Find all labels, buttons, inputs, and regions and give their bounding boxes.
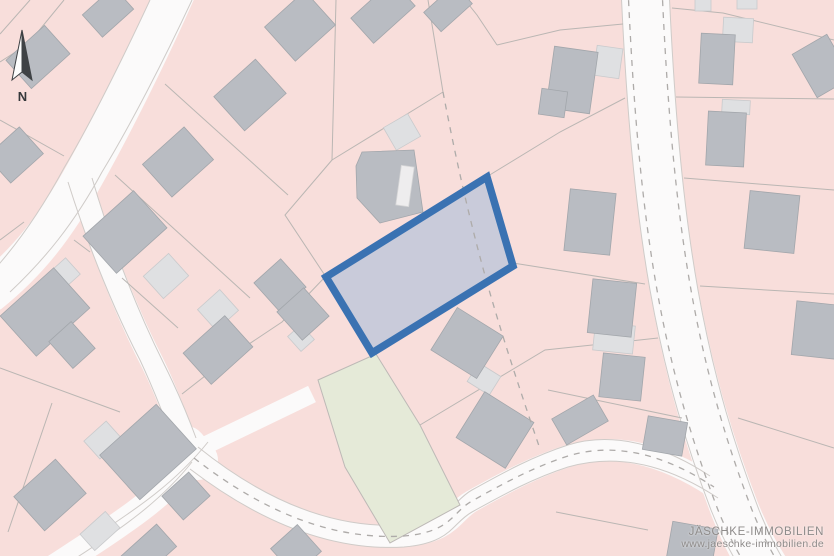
road <box>200 394 312 448</box>
building <box>642 416 687 456</box>
building <box>183 316 253 385</box>
parcel-boundary <box>700 286 834 294</box>
parcel-boundary <box>676 97 834 99</box>
building <box>265 0 336 61</box>
building <box>14 459 86 531</box>
building <box>599 353 645 401</box>
building <box>424 0 473 32</box>
watermark-url: www.jaeschke-immobilien.de <box>681 539 824 551</box>
north-arrow-icon <box>6 26 40 86</box>
building <box>552 395 609 445</box>
building <box>744 191 800 254</box>
parcel-boundary <box>738 418 834 448</box>
green-area <box>318 354 460 543</box>
building <box>456 392 534 469</box>
parcel-boundary <box>497 24 623 45</box>
building <box>431 307 503 378</box>
watermark: JÄSCHKE-IMMOBILIEN www.jaeschke-immobili… <box>681 526 824 551</box>
building <box>706 111 747 167</box>
building <box>538 88 567 117</box>
green-areas-layer <box>318 354 460 543</box>
building <box>564 189 616 255</box>
building <box>792 34 834 97</box>
structure <box>383 114 420 151</box>
building <box>356 150 423 223</box>
building <box>82 0 133 37</box>
structure <box>143 253 188 298</box>
structure <box>737 0 757 9</box>
parcel-boundary <box>556 512 648 530</box>
parcel-boundary <box>684 178 834 190</box>
building <box>791 301 834 359</box>
parcel-boundary <box>513 263 645 284</box>
building <box>142 127 213 197</box>
parcel-boundary <box>0 368 120 412</box>
building <box>0 127 43 183</box>
site-plan-map: N JÄSCHKE-IMMOBILIEN www.jaeschke-immobi… <box>0 0 834 556</box>
north-label: N <box>6 89 40 104</box>
structure <box>593 45 623 78</box>
map-canvas <box>0 0 834 556</box>
building <box>587 279 636 337</box>
north-arrow: N <box>6 26 40 104</box>
building <box>214 59 286 131</box>
building <box>699 33 736 85</box>
building <box>351 0 415 43</box>
parcel-boundary <box>465 0 497 45</box>
structure <box>695 0 711 11</box>
